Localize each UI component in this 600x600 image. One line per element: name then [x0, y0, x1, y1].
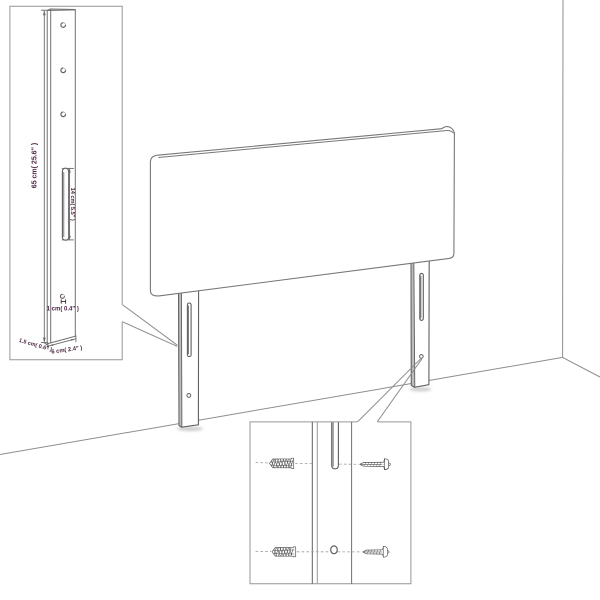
- svg-text:14 cm( 5.5′′ ): 14 cm( 5.5′′ ): [69, 188, 75, 221]
- svg-text:65 cm( 25.6′′ ): 65 cm( 25.6′′ ): [32, 143, 39, 188]
- svg-text:1 cm( 0.4′′ ): 1 cm( 0.4′′ ): [47, 307, 79, 313]
